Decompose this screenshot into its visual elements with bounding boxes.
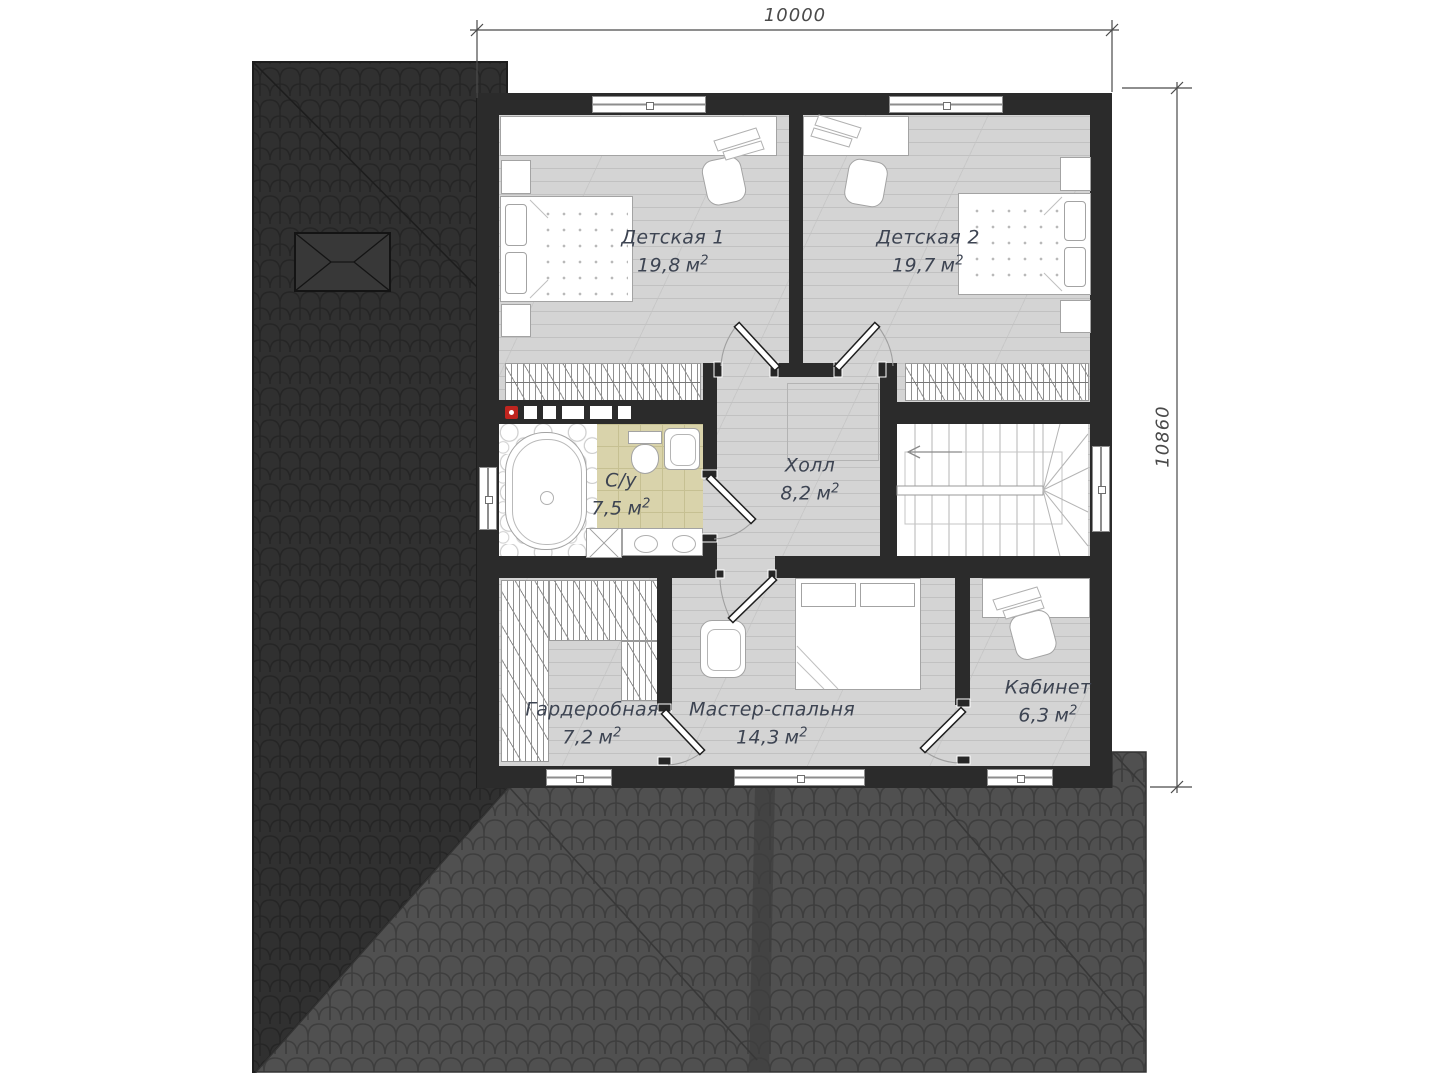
room-name: Детская 2 bbox=[876, 226, 979, 249]
floor-plan-canvas: 10000 10860 Детская 1 19,8м2 Детская 2 1… bbox=[0, 0, 1440, 1080]
room-name: Гардеробная bbox=[525, 698, 658, 721]
room-label-hall: Холл 8,2м2 bbox=[780, 454, 839, 505]
room-area: 6,3м2 bbox=[1005, 699, 1091, 727]
stairs-direction-arrow bbox=[908, 446, 962, 458]
line-layer bbox=[0, 0, 1440, 1080]
room-area: 7,2м2 bbox=[525, 721, 658, 749]
room-name: Холл bbox=[780, 454, 839, 477]
room-area: 8,2м2 bbox=[780, 477, 839, 505]
room-area: 19,8м2 bbox=[621, 249, 724, 277]
room-name: Кабинет bbox=[1005, 676, 1091, 699]
room-label-children2: Детская 2 19,7м2 bbox=[876, 226, 979, 277]
room-label-children1: Детская 1 19,8м2 bbox=[621, 226, 724, 277]
room-name: Детская 1 bbox=[621, 226, 724, 249]
room-area: 7,5м2 bbox=[591, 492, 650, 520]
room-label-office: Кабинет 6,3м2 bbox=[1005, 676, 1091, 727]
room-name: Мастер-спальня bbox=[689, 698, 855, 721]
dimension-top: 10000 bbox=[745, 5, 845, 26]
room-label-dressing: Гардеробная 7,2м2 bbox=[525, 698, 658, 749]
room-area: 19,7м2 bbox=[876, 249, 979, 277]
room-label-master: Мастер-спальня 14,3м2 bbox=[689, 698, 855, 749]
dimension-right: 10860 bbox=[1153, 392, 1174, 482]
staircase bbox=[897, 424, 1088, 556]
room-area: 14,3м2 bbox=[689, 721, 855, 749]
bed-fold-lines bbox=[530, 197, 1062, 689]
room-name: С/у bbox=[591, 469, 650, 492]
room-label-bathroom: С/у 7,5м2 bbox=[591, 469, 650, 520]
